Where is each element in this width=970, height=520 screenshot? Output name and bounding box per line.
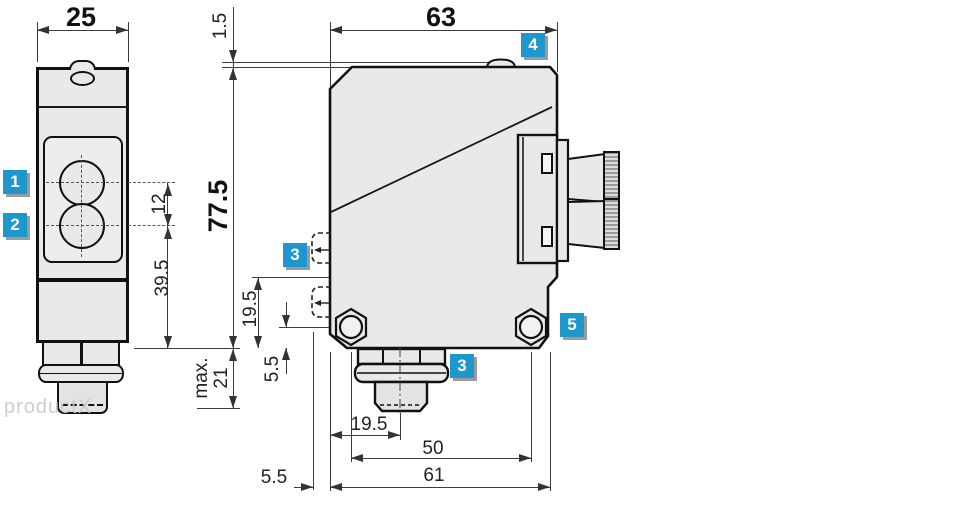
watermark-text: productX	[4, 396, 92, 419]
dim-text-21: 21	[212, 349, 232, 407]
potentiometer-knurl-lower	[604, 199, 619, 249]
callout-1: 1	[3, 170, 27, 194]
connector-plate	[557, 140, 568, 261]
front-connector-washer-line	[40, 373, 122, 375]
dim-text-12: 12	[149, 184, 171, 224]
lens-centerline-vertical	[81, 155, 82, 257]
front-view-clip-oval	[70, 71, 95, 86]
potentiometer-knurl-upper	[604, 152, 619, 204]
dim-text-max: max.	[192, 349, 212, 407]
callout-2: 2	[3, 213, 27, 237]
dim-text-1.5: 1.5	[210, 6, 232, 46]
lens1-centerline	[46, 182, 119, 183]
front-connector-nut-facet	[80, 343, 83, 364]
dim-text-5.5-bottom: 5.5	[252, 467, 296, 489]
front-view-separator-line	[39, 106, 126, 108]
lens-circle-1	[59, 160, 105, 206]
dim-text-19.5-vertical: 19.5	[240, 278, 262, 340]
callout-3-left: 3	[283, 243, 307, 267]
callout-4: 4	[521, 33, 545, 57]
lens-circle-2	[59, 203, 105, 249]
dim-text-77.5: 77.5	[203, 164, 233, 248]
dim-text-5.5-vertical: 5.5	[262, 346, 284, 392]
potentiometer-shaft-lower	[568, 201, 605, 248]
connector-slot-lower	[542, 227, 552, 246]
lens2-centerline	[46, 225, 119, 226]
dim-text-61: 61	[402, 465, 466, 487]
dim-text-39.5: 39.5	[152, 247, 176, 309]
front-view-top-bump	[69, 60, 96, 70]
bottom-connector-nut	[358, 349, 445, 364]
bottom-connector-plug	[375, 382, 427, 411]
callout-5: 5	[560, 313, 584, 337]
dim-text-63: 63	[411, 2, 471, 33]
hidden-mount-lower	[312, 287, 331, 317]
callout-3-bottom: 3	[450, 354, 474, 378]
potentiometer-shaft-upper	[568, 154, 605, 202]
dim-text-50: 50	[401, 438, 465, 460]
dim-text-max-21: max. 21	[192, 349, 234, 407]
dimensional-drawing-canvas: 25 12 39.5	[0, 0, 970, 520]
connector-slot-upper	[542, 154, 552, 173]
dim-text-25: 25	[53, 2, 109, 33]
front-view-thick-line	[36, 278, 129, 282]
hidden-mount-upper	[312, 233, 331, 263]
ref-line-connector-bottom	[197, 408, 240, 409]
